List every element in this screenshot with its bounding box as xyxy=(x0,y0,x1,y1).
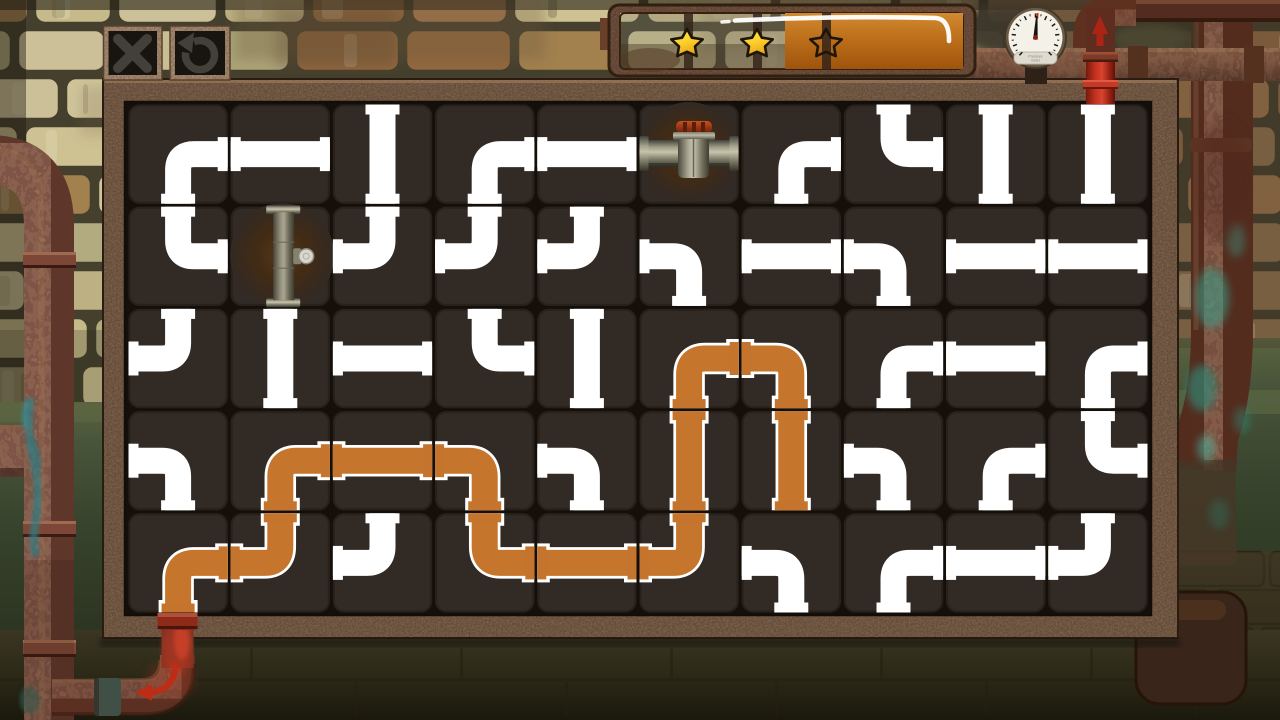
svg-text:meter: meter xyxy=(1031,59,1041,63)
